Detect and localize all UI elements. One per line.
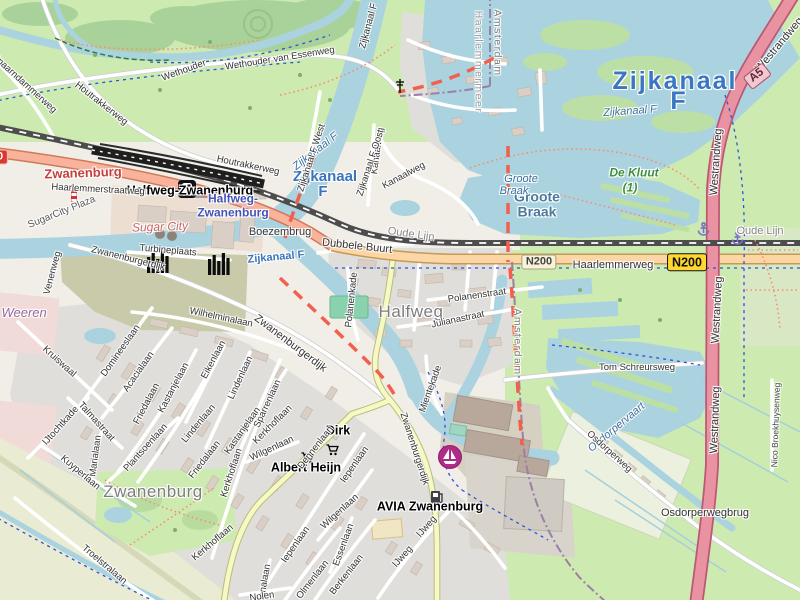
map-base-layer [0, 0, 800, 600]
map-canvas[interactable]: ZwanenburgHalfweg-ZwanenburgHalfweg-Zwan… [0, 0, 800, 600]
